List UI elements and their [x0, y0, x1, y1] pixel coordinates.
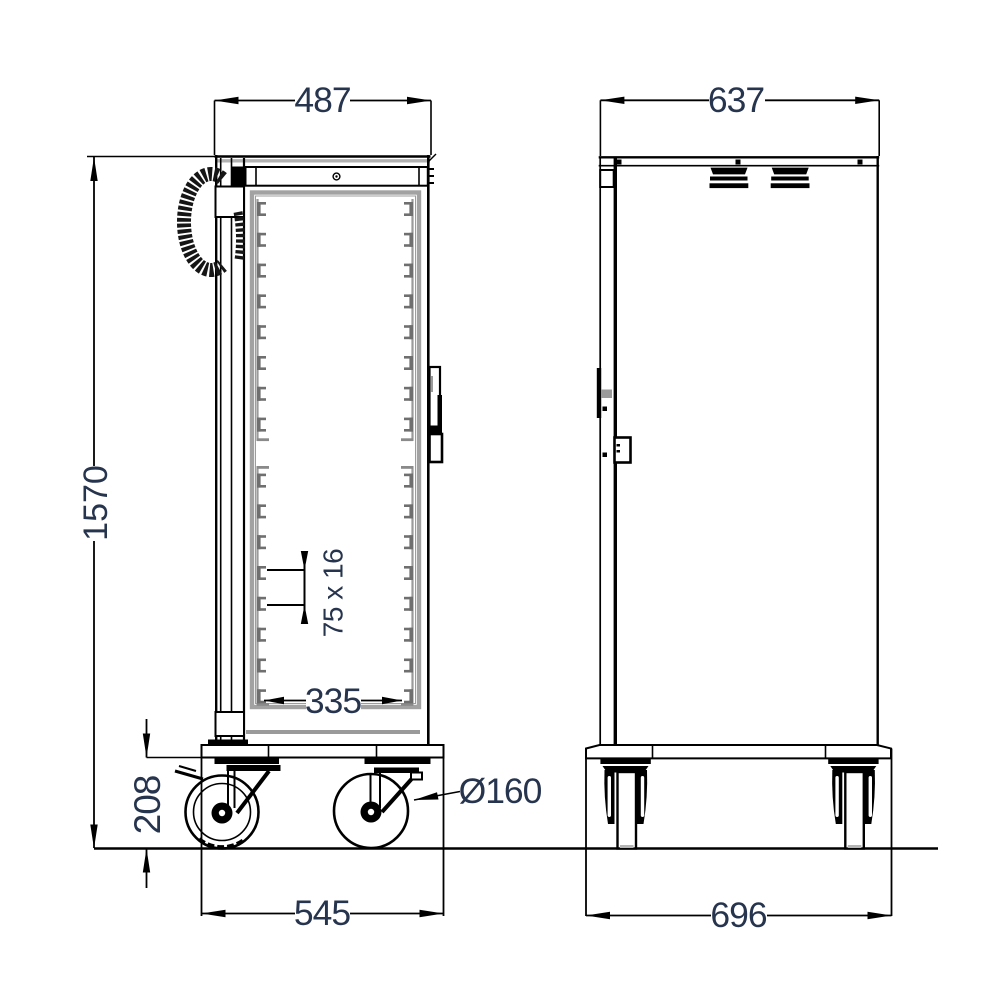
svg-text:1570: 1570: [77, 465, 115, 541]
svg-text:Ø160: Ø160: [459, 771, 542, 811]
svg-text:545: 545: [294, 893, 350, 933]
svg-text:75 x 16: 75 x 16: [318, 549, 349, 637]
svg-text:335: 335: [305, 681, 361, 721]
svg-text:637: 637: [708, 80, 764, 120]
svg-text:696: 696: [710, 895, 766, 935]
svg-text:487: 487: [294, 80, 350, 120]
svg-text:208: 208: [127, 776, 168, 835]
